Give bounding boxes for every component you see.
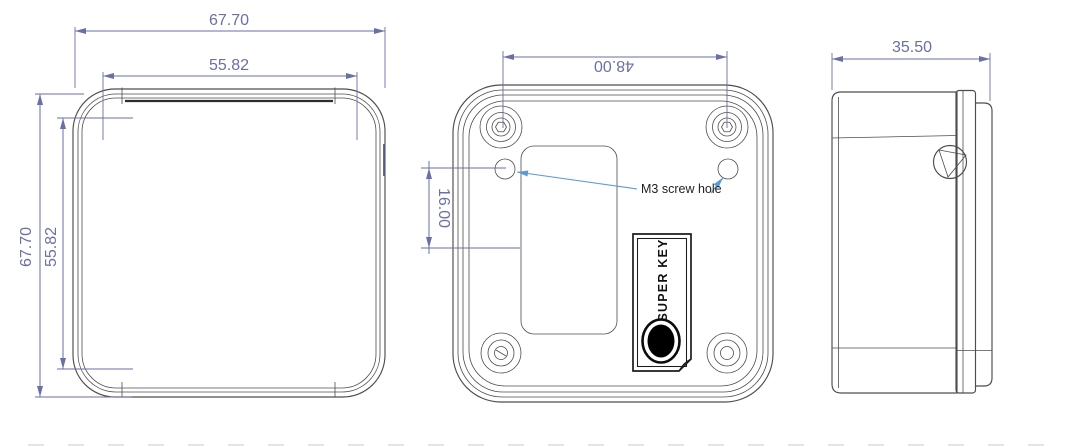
dim-text-front-outer-height: 67.70 [18, 227, 35, 267]
dim-text-front-outer-width: 67.70 [209, 12, 249, 29]
dim-text-front-inner-height: 55.82 [43, 227, 60, 267]
lock-technical-drawing: 67.70 55.82 67.70 55.82 [0, 0, 1083, 447]
back-outer-case [453, 85, 773, 402]
screw-boss-top-left [480, 106, 522, 148]
front-bezel-line [78, 94, 380, 392]
dim-front-outer-height: 67.70 [18, 94, 132, 397]
side-view: 35.50 [832, 39, 992, 393]
side-back-plate [976, 103, 993, 386]
front-view: 67.70 55.82 67.70 55.82 [18, 12, 385, 398]
dim-front-inner-height: 55.82 [43, 118, 133, 369]
back-view: SUPER KEY 48.00 16.00 [421, 51, 773, 402]
screw-boss-bottom-left [481, 333, 521, 373]
dim-back-hole-spacing: 48.00 [503, 51, 727, 128]
m3-screw-hole-callout: M3 screw hole [517, 171, 723, 197]
dim-front-inner-width: 55.82 [103, 57, 357, 140]
m3-screw-hole-left [495, 159, 515, 179]
dim-back-hole-offset: 16.00 [421, 161, 520, 254]
super-key-label-plate: SUPER KEY [633, 234, 691, 371]
screw-boss-bottom-right [707, 333, 747, 373]
super-key-label: SUPER KEY [656, 238, 670, 321]
side-front-frame [956, 91, 976, 394]
dim-front-outer-width: 67.70 [75, 12, 385, 88]
side-thumbturn-knob [934, 146, 967, 179]
dim-text-side-depth: 35.50 [892, 39, 932, 56]
front-outer-case [73, 89, 385, 397]
m3-screw-hole-right [718, 159, 738, 179]
side-top-band-line [832, 136, 957, 139]
dim-text-back-hole-spacing: 48.00 [594, 57, 634, 74]
m3-screw-hole-label: M3 screw hole [641, 182, 722, 196]
technical-drawing-canvas: 67.70 55.82 67.70 55.82 [0, 0, 1083, 447]
keyhole [648, 325, 675, 358]
dim-text-back-hole-offset: 16.00 [435, 188, 452, 228]
dim-text-front-inner-width: 55.82 [209, 57, 249, 74]
back-case-line-2 [458, 90, 768, 397]
front-face-line [82, 98, 376, 388]
